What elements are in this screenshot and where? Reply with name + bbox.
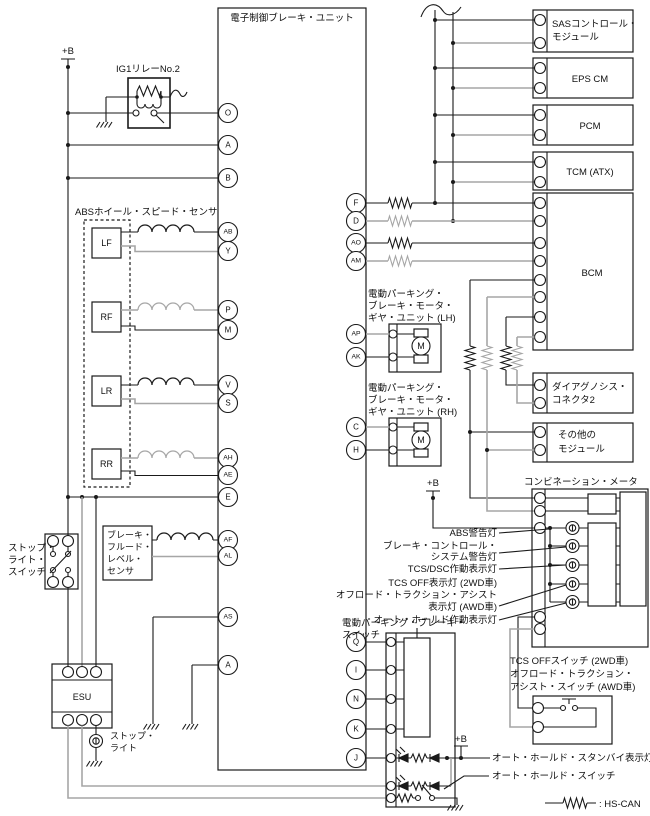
tcs-off-label-2: オフロード・トラクション・アシスト bbox=[336, 590, 497, 601]
main-unit-title: 電子制御ブレーキ・ユニット bbox=[230, 12, 354, 24]
sensor-rf: RF bbox=[92, 302, 218, 332]
motor-m-icon: M bbox=[417, 341, 425, 351]
terminal-J: J bbox=[354, 754, 358, 763]
terminal-F: F bbox=[354, 199, 359, 208]
pcm-label: PCM bbox=[579, 121, 600, 132]
stop-light-switch: ストップ・ ライト・ スイッチ bbox=[8, 534, 78, 667]
bus-continuation-squiggle bbox=[421, 5, 461, 17]
ground-icon bbox=[183, 720, 199, 730]
abs-sensor-group: ABSホイール・スピード・センサ LF RF LR RR bbox=[75, 207, 218, 487]
stop-light-bulb-icon bbox=[90, 735, 103, 748]
other-label-2: モジュール bbox=[558, 444, 605, 455]
tcs-dsc-label: TCS/DSC作動表示灯 bbox=[408, 563, 498, 575]
fluid-label-1: ブレーキ・ bbox=[107, 529, 152, 540]
sensor-rr-label: RR bbox=[100, 459, 113, 469]
tcs-off-label-1: TCS OFF表示灯 (2WD車) bbox=[388, 577, 497, 589]
terminal-I: I bbox=[355, 666, 357, 675]
terminal-AL: AL bbox=[224, 553, 233, 560]
power-rail-left: +B bbox=[61, 46, 75, 536]
terminal-K: K bbox=[353, 725, 359, 734]
sensor-rr: RR bbox=[92, 449, 218, 479]
epb-motor-lh: 電動パーキング・ ブレーキ・モータ・ ギヤ・ユニット (LH) M bbox=[366, 288, 456, 372]
stop-lamp-label-1: ストップ・ bbox=[110, 731, 155, 741]
wiring-diagram: +B IG1リレーNo.2 ABSホイール・スピード・センサ LF RF LR bbox=[0, 0, 650, 816]
motor-m-icon: M bbox=[417, 435, 425, 445]
epb-lh-label-1: 電動パーキング・ bbox=[368, 288, 444, 300]
terminal-B: B bbox=[225, 174, 230, 183]
module-pcm: PCM bbox=[533, 105, 633, 145]
hs-can-label: : HS-CAN bbox=[599, 799, 641, 810]
epb-rh-label-2: ブレーキ・モータ・ bbox=[368, 394, 454, 406]
ground-icon bbox=[97, 118, 113, 128]
module-bcm: BCM bbox=[533, 193, 633, 350]
other-label-1: その他の bbox=[558, 429, 596, 441]
terminal-Y: Y bbox=[225, 247, 231, 256]
terminal-P: P bbox=[225, 306, 230, 315]
epb-rh-label-3: ギヤ・ユニット (RH) bbox=[368, 407, 457, 418]
terminal-D: D bbox=[353, 217, 359, 226]
terminal-E: E bbox=[225, 493, 230, 502]
tcs-switch-label-3: アシスト・スイッチ (AWD車) bbox=[510, 681, 635, 693]
main-unit-left-terminals: O A B AB Y P M V S AH AE E AF AL AS A bbox=[219, 104, 238, 675]
brake-control-lamp-icon bbox=[566, 540, 579, 553]
terminal-S: S bbox=[225, 399, 230, 408]
terminal-AS: AS bbox=[223, 614, 233, 621]
module-other: その他の モジュール bbox=[533, 423, 633, 462]
terminal-H: H bbox=[353, 446, 359, 455]
tcs-switch-label-1: TCS OFFスイッチ (2WD車) bbox=[510, 655, 628, 667]
sensor-lr-label: LR bbox=[101, 386, 113, 396]
module-diag: ダイアグノシス・ コネクタ2 bbox=[533, 373, 633, 413]
epb-switch-label-1: 電動パーキング・ブレーキ・ bbox=[342, 617, 465, 629]
terminal-AM: AM bbox=[351, 258, 362, 265]
epb-switch-label-2: スイッチ bbox=[342, 630, 380, 641]
tcs-switch-label-2: オフロード・トラクション・ bbox=[510, 669, 634, 680]
terminal-N: N bbox=[353, 695, 359, 704]
stop-switch-label-2: ライト・ bbox=[8, 555, 46, 566]
twisted-pair-icon bbox=[563, 798, 587, 808]
diagram-canvas: +B IG1リレーNo.2 ABSホイール・スピード・センサ LF RF LR bbox=[0, 0, 650, 816]
auto-hold-lamp-icon bbox=[566, 596, 579, 609]
relay-coil bbox=[137, 104, 161, 108]
module-eps: EPS CM bbox=[533, 58, 633, 98]
bcm-label: BCM bbox=[581, 268, 602, 279]
can-pair-wires bbox=[366, 198, 535, 266]
terminal-C: C bbox=[353, 423, 359, 432]
terminal-A: A bbox=[225, 141, 231, 150]
ground-icon bbox=[87, 757, 103, 767]
terminal-M: M bbox=[225, 326, 232, 335]
sensor-lf-label: LF bbox=[101, 238, 112, 248]
terminal-AH: AH bbox=[223, 455, 233, 462]
ig1-relay: IG1リレーNo.2 bbox=[68, 64, 218, 128]
terminal-AF: AF bbox=[224, 537, 233, 544]
diag-label-1: ダイアグノシス・ bbox=[552, 381, 627, 393]
epb-lh-label-2: ブレーキ・モータ・ bbox=[368, 300, 454, 312]
tcm-label: TCM (ATX) bbox=[566, 167, 613, 178]
eps-label: EPS CM bbox=[572, 74, 609, 85]
esu-label: ESU bbox=[73, 692, 92, 702]
brake-fluid-sensor: ブレーキ・ フルード・ レベル・ センサ bbox=[103, 526, 218, 580]
terminal-O: O bbox=[225, 109, 231, 118]
tcs-dsc-lamp-icon bbox=[566, 559, 579, 572]
tcs-off-label-3: 表示灯 (AWD車) bbox=[428, 601, 497, 613]
fluid-label-2: フルード・ bbox=[107, 542, 152, 552]
abs-warning-lamp-icon bbox=[566, 522, 579, 535]
terminal-AP: AP bbox=[351, 331, 361, 338]
sensor-lf: LF bbox=[92, 225, 218, 258]
stop-switch-label-3: スイッチ bbox=[8, 567, 46, 578]
epb-motor-rh: 電動パーキング・ ブレーキ・モータ・ ギヤ・ユニット (RH) M bbox=[366, 382, 457, 466]
sensor-lr: LR bbox=[92, 376, 218, 406]
terminal-V: V bbox=[225, 381, 231, 390]
can-bus bbox=[421, 5, 535, 223]
terminal-AB: AB bbox=[223, 229, 233, 236]
abs-group-label: ABSホイール・スピード・センサ bbox=[75, 207, 218, 218]
terminal-AO: AO bbox=[351, 240, 361, 247]
fluid-label-4: センサ bbox=[107, 566, 134, 576]
auto-hold-standby-label: オート・ホールド・スタンバイ表示灯 bbox=[492, 752, 650, 764]
brake-control-label-2: システム警告灯 bbox=[431, 551, 498, 563]
stop-lamp-label-2: ライト bbox=[110, 743, 137, 753]
brake-control-label-1: ブレーキ・コントロール・ bbox=[383, 540, 497, 552]
epb-rh-label-1: 電動パーキング・ bbox=[368, 382, 444, 394]
tcs-off-switch: TCS OFFスイッチ (2WD車) オフロード・トラクション・ アシスト・スイ… bbox=[510, 617, 635, 744]
fluid-label-3: レベル・ bbox=[107, 554, 143, 564]
hs-can-legend: : HS-CAN bbox=[545, 798, 641, 810]
plus-b-label-meter: +B bbox=[427, 478, 439, 489]
plus-b-label-left: +B bbox=[62, 46, 74, 57]
main-unit: 電子制御ブレーキ・ユニット bbox=[218, 8, 366, 770]
supply-wires bbox=[68, 145, 218, 667]
sas-label-1: SASコントロール・ bbox=[552, 19, 638, 30]
terminal-A2: A bbox=[225, 661, 231, 670]
ground-icon bbox=[144, 720, 160, 730]
meter-label: コンビネーション・メータ bbox=[524, 477, 638, 488]
epb-switch: 電動パーキング・ブレーキ・ スイッチ +B オート・ホールド・スタンバイ表示灯 … bbox=[342, 617, 650, 811]
terminal-AK: AK bbox=[351, 354, 361, 361]
wire-continuation-squiggle bbox=[170, 90, 187, 97]
diag-label-2: コネクタ2 bbox=[552, 395, 595, 406]
module-sas: SASコントロール・ モジュール bbox=[533, 10, 638, 52]
relay-lever bbox=[156, 115, 164, 123]
auto-hold-switch-label: オート・ホールド・スイッチ bbox=[492, 771, 616, 782]
abs-warning-label: ABS警告灯 bbox=[449, 527, 497, 539]
esu-unit: ESU ストップ・ ライト bbox=[52, 664, 387, 798]
relay-label: IG1リレーNo.2 bbox=[116, 64, 180, 75]
epb-lh-label-3: ギヤ・ユニット (LH) bbox=[368, 313, 456, 324]
combination-meter: コンビネーション・メータ bbox=[524, 477, 648, 647]
plus-b-label-epb: +B bbox=[455, 734, 467, 745]
main-unit-right-terminals: F D AO AM AP AK C H Q I N K J bbox=[347, 194, 366, 768]
tcs-off-lamp-icon bbox=[566, 578, 579, 591]
terminal-AE: AE bbox=[223, 472, 233, 479]
sensor-rf-label: RF bbox=[101, 312, 113, 322]
relay-resistor bbox=[137, 86, 161, 96]
abs-group-outline bbox=[84, 220, 130, 487]
sas-label-2: モジュール bbox=[552, 32, 599, 43]
module-tcm: TCM (ATX) bbox=[533, 152, 633, 190]
ground-wires bbox=[144, 617, 219, 730]
